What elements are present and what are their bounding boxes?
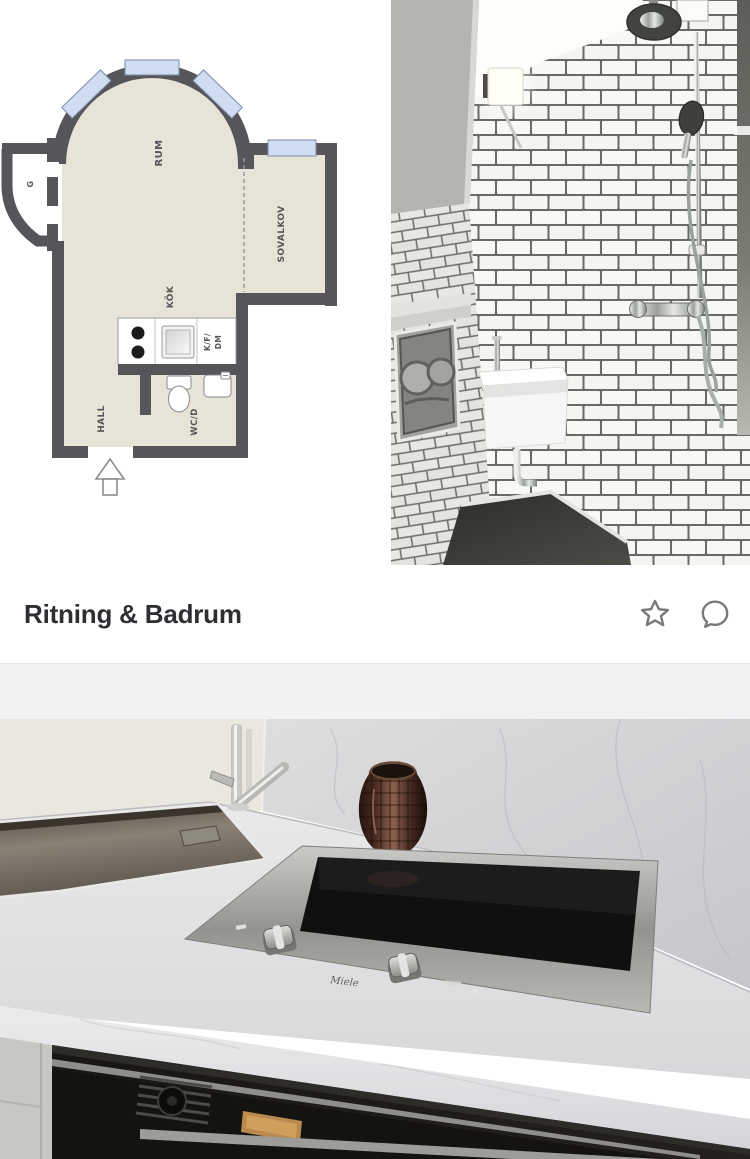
room-label-rum: RUM	[154, 140, 165, 167]
vent-box	[677, 0, 708, 21]
sink-faucet	[494, 338, 500, 371]
base-cabinet	[0, 1037, 52, 1159]
caption-actions	[638, 597, 732, 631]
stove-burner	[132, 327, 145, 340]
room-label-closet: G	[26, 181, 35, 188]
speech-bubble-icon	[698, 597, 732, 631]
wc-basin	[204, 372, 231, 397]
room-label-hall: HALL	[97, 405, 107, 433]
wall-edge	[737, 0, 750, 435]
caption-bar: Ritning & Badrum	[0, 565, 750, 663]
floor-plan-drawing: RUM SOVALKOV KÖK K/F/ DM WC/D HALL G	[0, 0, 389, 565]
gallery-caption: Ritning & Badrum	[24, 599, 242, 630]
room-label-sovalkov: SOVALKOV	[277, 205, 287, 262]
room-label-kf: K/F/	[203, 333, 212, 351]
comment-button[interactable]	[698, 597, 732, 631]
room-label-kok: KÖK	[165, 285, 176, 308]
gallery-row: RUM SOVALKOV KÖK K/F/ DM WC/D HALL G	[0, 0, 750, 565]
star-icon	[638, 597, 672, 631]
bathroom-photo[interactable]	[391, 0, 750, 565]
section-divider	[0, 663, 750, 719]
room-label-wcd: WC/D	[190, 408, 200, 435]
kitchen-scene: Miele	[0, 719, 750, 1159]
toilet	[167, 376, 191, 412]
mosaic-mirror-panel	[395, 323, 459, 441]
room-label-dm: DM	[214, 335, 223, 350]
floor-plan-image[interactable]: RUM SOVALKOV KÖK K/F/ DM WC/D HALL G	[0, 0, 389, 565]
stove-burner	[132, 346, 145, 359]
listing-page: RUM SOVALKOV KÖK K/F/ DM WC/D HALL G	[0, 0, 750, 1159]
wall-lamp	[488, 68, 523, 105]
kitchen-photo[interactable]: Miele	[0, 719, 750, 1159]
bathroom-scene	[391, 0, 750, 565]
favorite-star-button[interactable]	[638, 597, 672, 631]
